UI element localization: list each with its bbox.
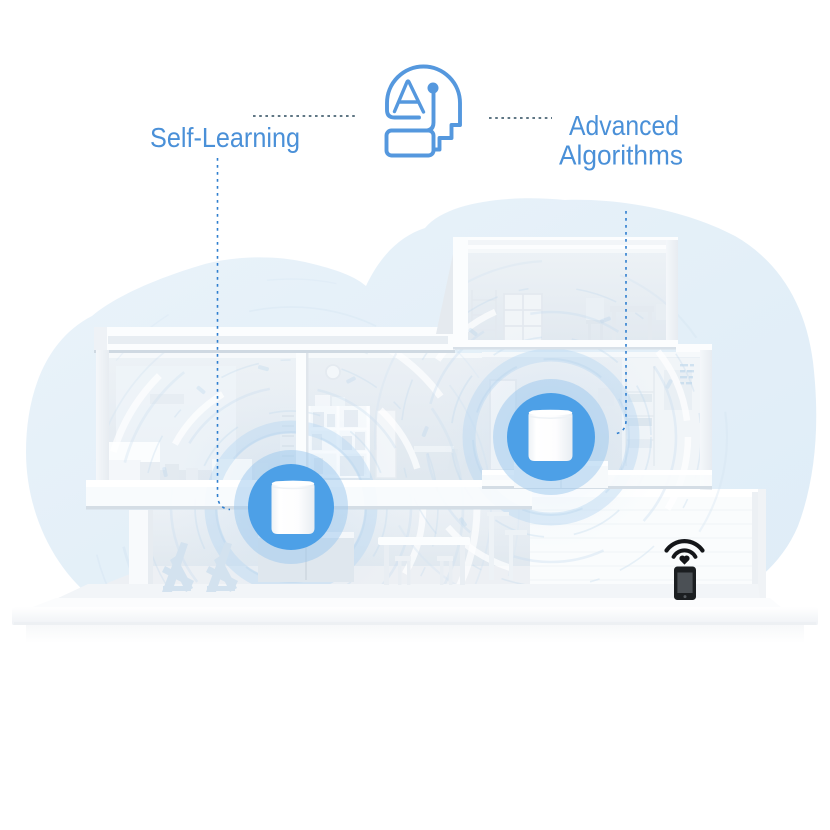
svg-text:Algorithms: Algorithms [559,140,683,171]
svg-text:Advanced: Advanced [569,110,679,141]
svg-text:Self-Learning: Self-Learning [150,122,300,153]
